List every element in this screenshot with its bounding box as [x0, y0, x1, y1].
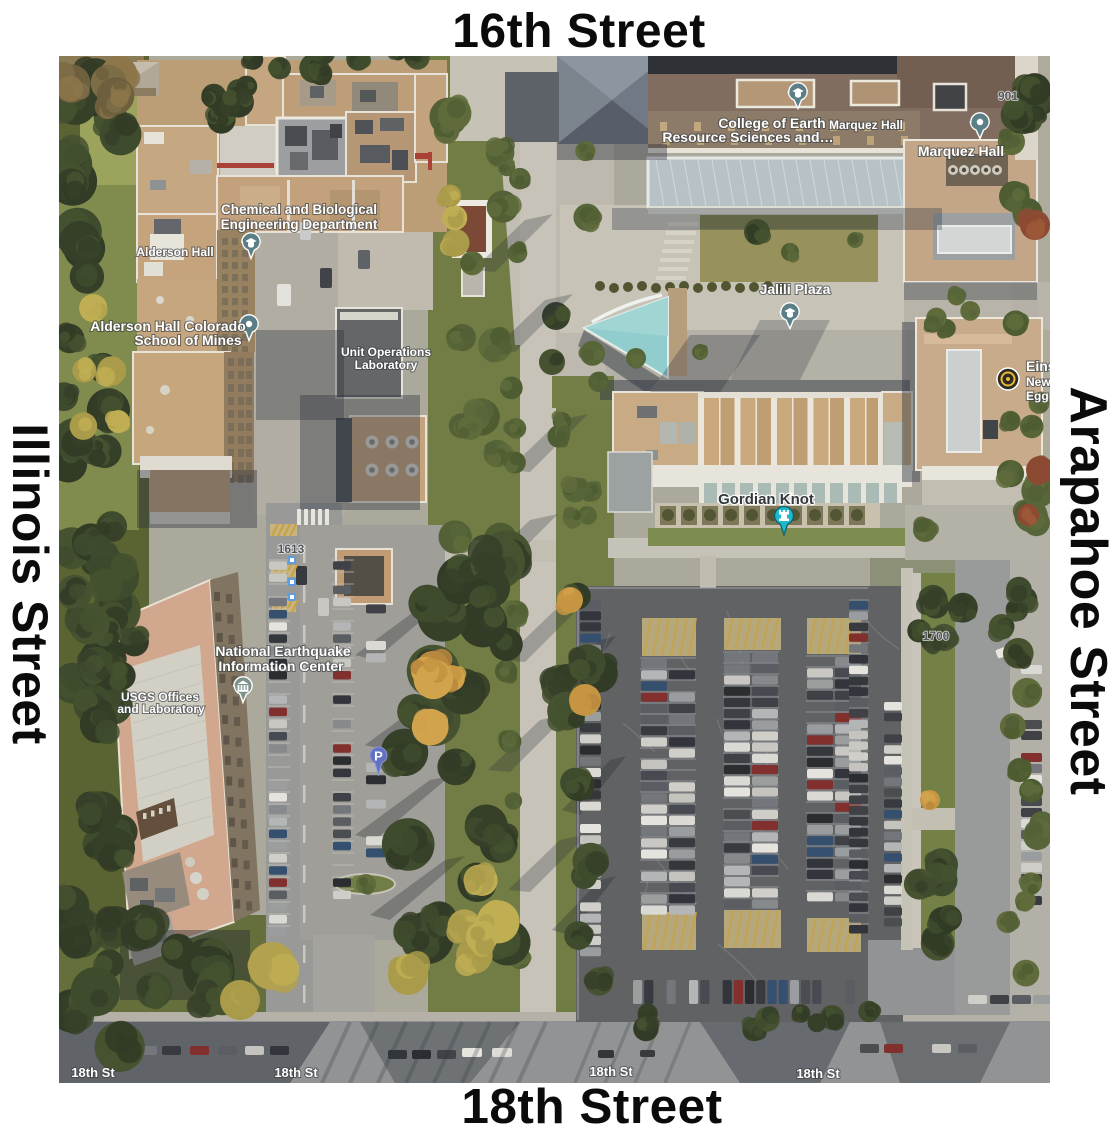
svg-text:901: 901	[998, 89, 1018, 103]
svg-text:Alderson Hall: Alderson Hall	[136, 245, 213, 259]
svg-text:18th St: 18th St	[274, 1065, 318, 1080]
svg-text:18th St: 18th St	[589, 1064, 633, 1079]
svg-text:Gordian Knot: Gordian Knot	[718, 491, 814, 508]
svg-text:Arapahoe Street: Arapahoe Street	[1059, 386, 1115, 795]
svg-text:and Laboratory: and Laboratory	[117, 702, 205, 716]
svg-text:18th St: 18th St	[796, 1066, 840, 1081]
svg-text:Marquez Hall: Marquez Hall	[918, 143, 1004, 159]
svg-text:Information Center: Information Center	[218, 658, 344, 674]
svg-text:New: New	[1026, 375, 1051, 389]
svg-text:1700: 1700	[923, 629, 950, 643]
svg-text:National Earthquake: National Earthquake	[215, 643, 351, 659]
svg-text:Chemical and Biological: Chemical and Biological	[221, 202, 377, 217]
svg-text:Illinois Street: Illinois Street	[2, 423, 58, 744]
svg-text:School of Mines: School of Mines	[134, 332, 242, 348]
svg-text:Unit Operations: Unit Operations	[341, 345, 431, 359]
svg-text:Resource Sciences and…: Resource Sciences and…	[662, 129, 833, 145]
svg-text:Laboratory: Laboratory	[355, 358, 418, 372]
svg-text:18th Street: 18th Street	[461, 1079, 722, 1134]
svg-text:16th Street: 16th Street	[452, 5, 706, 58]
svg-text:1613: 1613	[278, 542, 305, 556]
svg-text:Engineering Department: Engineering Department	[221, 217, 378, 232]
svg-text:18th St: 18th St	[71, 1065, 115, 1080]
svg-text:Marquez Hall: Marquez Hall	[829, 118, 903, 132]
svg-text:Jalili Plaza: Jalili Plaza	[760, 281, 831, 297]
svg-text:P: P	[374, 749, 383, 764]
